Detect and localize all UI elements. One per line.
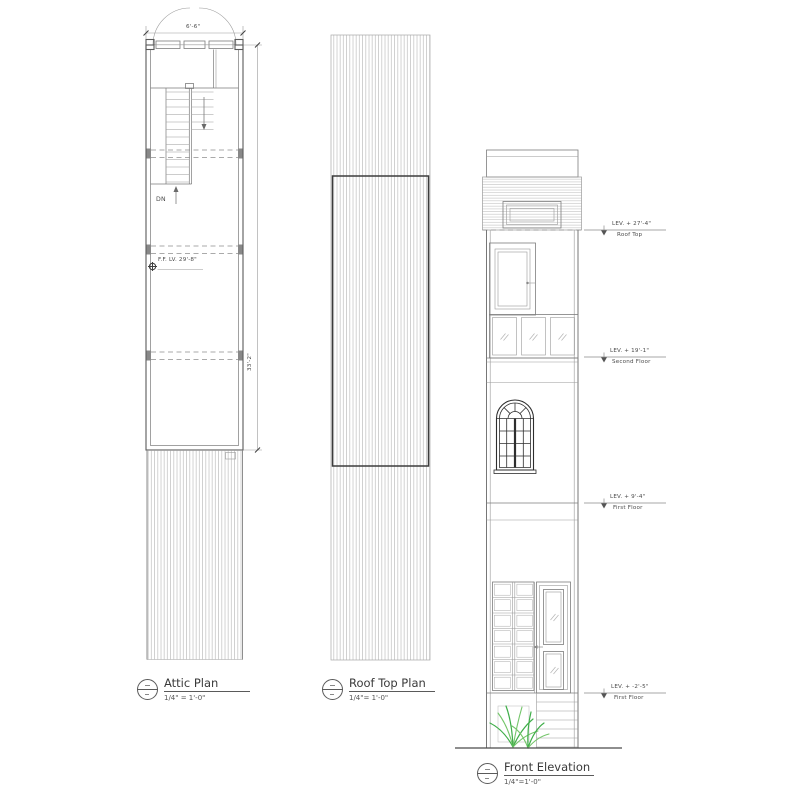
roof-top-plan-drawing (331, 35, 430, 660)
ff-level-note: F.F. LV. 29'-8" (158, 258, 197, 264)
level-text-rooftop-elevation: LEV. + 27'-4" (612, 222, 651, 228)
front-elevation-titleblock: Front Elevation 1/4"=1'-0" (477, 760, 594, 786)
level-text-grade-elevation: LEV. + -2'-5" (611, 685, 649, 691)
attic-plan-titleblock: Attic Plan 1/4" = 1'-0" (137, 676, 250, 702)
drawing-title-bubble (137, 679, 158, 700)
attic-roof-hatch (147, 451, 243, 660)
attic-top-dimension: 6'-6" (186, 25, 200, 31)
ground-floor-panel-grid (493, 582, 535, 691)
front-elevation-scale: 1/4"=1'-0" (504, 776, 594, 786)
level-text-first-elevation: LEV. + 9'-4" (610, 495, 645, 501)
attic-plan-drawing (144, 8, 263, 660)
second-floor-door (490, 243, 536, 315)
entry-door (533, 582, 571, 693)
level-text-second-elevation: LEV. + 19'-1" (610, 349, 649, 355)
stair-plan (151, 50, 239, 205)
level-text-grade-name: First Floor (614, 696, 644, 702)
arched-window (494, 400, 536, 474)
level-text-second-name: Second Floor (612, 360, 651, 366)
roof-hatch (331, 35, 430, 660)
level-markers (584, 226, 666, 699)
roof-top-plan-scale: 1/4"= 1'-0" (349, 692, 435, 702)
second-floor-window-row (490, 315, 579, 359)
stair-dn-label: DN (156, 197, 166, 204)
drawing-title-bubble (322, 679, 343, 700)
level-text-rooftop-name: Roof Top (617, 233, 642, 239)
front-elevation-title: Front Elevation (504, 760, 594, 776)
attic-plan-title: Attic Plan (164, 676, 250, 692)
drawing-title-bubble (477, 763, 498, 784)
planter-box (498, 706, 529, 742)
roof-break-lines (147, 149, 243, 361)
attic-plan-scale: 1/4" = 1'-0" (164, 692, 250, 702)
architectural-sheet: 6'-6" DN F.F. LV. 29'-8" 33'-2" LEV. + 2… (0, 0, 800, 800)
stair-dn-arrow-icon (174, 186, 179, 204)
stoop-stairs (537, 693, 579, 748)
attic-right-dimension: 33'-2" (248, 353, 254, 371)
cornice-band (483, 177, 582, 230)
level-text-first-name: First Floor (613, 506, 643, 512)
roof-top-plan-titleblock: Roof Top Plan 1/4"= 1'-0" (322, 676, 435, 702)
stair-down-arrow-icon (202, 97, 207, 130)
front-elevation-drawing (455, 150, 666, 748)
roof-top-plan-title: Roof Top Plan (349, 676, 435, 692)
